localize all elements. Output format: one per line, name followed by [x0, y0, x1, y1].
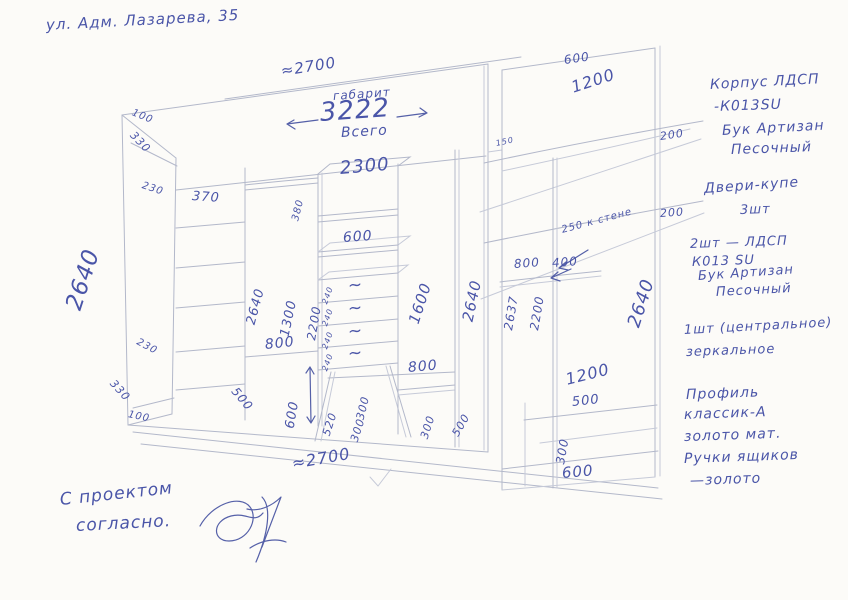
dim-800-unit: 800 [514, 256, 541, 270]
dim-200-a: 200 [659, 128, 684, 142]
dim-200-b: 200 [660, 206, 685, 219]
drawer-squiggle-2: ~ [347, 300, 364, 318]
dim-600-unit-top: 600 [563, 50, 590, 65]
note-body-material-2: -К013SU [714, 98, 782, 114]
dim-2640-right-inner: 2640 [461, 279, 484, 323]
note-body-material-4: Песочный [731, 140, 812, 157]
note-body-material-1: Корпус ЛДСП [710, 72, 820, 92]
dim-800-hang: 800 [264, 335, 295, 352]
dim-left-top-330: 330 [128, 130, 153, 155]
note-handles-1: Ручки ящиков [684, 448, 799, 466]
dim-top-width: ≈2700 [280, 55, 337, 79]
dim-500-unit: 500 [571, 393, 600, 409]
dim-bottom-width: ≈2700 [291, 446, 352, 472]
dim-300-center-c: 300 [419, 414, 437, 440]
note-profile-1: Профиль [686, 385, 760, 402]
drawer-squiggle-1: ~ [347, 277, 364, 295]
dim-1200-unit-top: 1200 [570, 67, 617, 96]
dim-hang-1300: 1300 [279, 299, 299, 338]
dim-500-right-leg: 500 [450, 412, 472, 438]
note-profile-3: золото мат. [684, 427, 782, 444]
note-handles-2: —золото [690, 472, 762, 488]
drawer-squiggle-4: ~ [347, 345, 364, 363]
note-250-wall: 250 к стене [561, 207, 634, 235]
note-mirror-1: 1шт (центральное) [684, 316, 833, 337]
dim-600-unit-bottom: 600 [561, 463, 594, 481]
address: ул. Адм. Лазарева, 35 [46, 8, 240, 33]
labels-layer: ул. Адм. Лазарева, 35≈2700габарит3222Все… [0, 0, 848, 600]
dim-drawer-240-4: 240 [321, 352, 335, 372]
note-doors-1: Двери-купе [704, 175, 800, 196]
dim-height-2640-inner: 2640 [245, 287, 267, 326]
dim-600-arrow: 600 [284, 400, 302, 430]
dim-overall-3222: 3222 [319, 95, 391, 126]
dim-300-center-b: 300 [349, 417, 367, 443]
dim-left-230-bottom: 230 [135, 338, 159, 357]
dim-left-230-top: 230 [140, 181, 164, 197]
dim-300-unit: 300 [554, 437, 570, 465]
dim-left-top-100: 100 [130, 108, 154, 126]
dim-1600: 1600 [407, 281, 434, 326]
note-mirror-2: зеркальное [686, 343, 776, 359]
dim-500-left-leg: 500 [229, 385, 255, 413]
sketch-sheet: ул. Адм. Лазарева, 35≈2700габарит3222Все… [0, 0, 848, 600]
dim-drawer-240-3: 240 [321, 330, 335, 350]
note-body-material-3: Бук Артизан [722, 119, 825, 138]
dim-600-center: 600 [343, 229, 374, 245]
note-door-material-4: Песочный [716, 282, 792, 299]
dim-520: 520 [321, 411, 339, 437]
dim-drawer-240-1: 240 [321, 285, 335, 305]
dim-2637: 2637 [502, 295, 520, 331]
approval-line-1: С проектом [59, 480, 174, 509]
dim-400: 400 [552, 255, 579, 269]
approval-line-2: согласно. [76, 513, 172, 535]
dim-380: 380 [291, 198, 306, 222]
dim-height-2640-left: 2640 [63, 246, 104, 313]
note-door-material-1: 2шт — ЛДСП [690, 235, 788, 251]
dim-150: 150 [495, 136, 515, 148]
dim-left-bottom-100: 100 [127, 410, 151, 424]
note-doors-2: 3шт [740, 203, 771, 217]
dim-1200-unit-bottom: 1200 [564, 361, 611, 387]
dim-800-right: 800 [407, 358, 438, 375]
dim-interior-2300: 2300 [339, 156, 390, 178]
dim-2200-unit: 2200 [528, 295, 546, 331]
note-profile-2: классик-А [684, 405, 767, 422]
dim-shelf-370: 370 [192, 190, 221, 205]
drawer-squiggle-3: ~ [347, 323, 364, 341]
label-vsego: Всего [341, 124, 389, 140]
dim-left-330-bottom: 330 [108, 378, 132, 403]
dim-2640-unit: 2640 [625, 277, 658, 330]
